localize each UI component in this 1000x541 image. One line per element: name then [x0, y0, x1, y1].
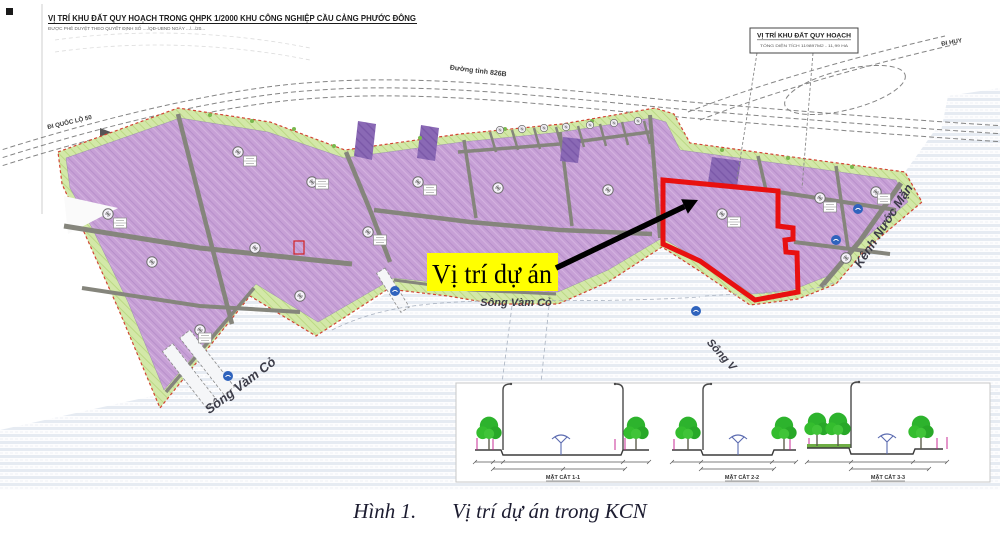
figure-map: Sông Vàm Cỏ Sông Vàm Cỏ Sông V Kênh Nước… — [0, 0, 1000, 490]
hydro-icon — [853, 204, 863, 214]
planning-map-canvas: Sông Vàm Cỏ Sông Vàm Cỏ Sông V Kênh Nước… — [0, 0, 1000, 490]
hydro-icon — [691, 306, 701, 316]
hydro-icon — [831, 235, 841, 245]
figure-caption-label: Hình 1. — [353, 499, 416, 524]
map-subtitle: ĐƯỢC PHÊ DUYỆT THEO QUYẾT ĐỊNH SỐ ..../Q… — [48, 24, 205, 31]
section-caption: MẶT CẮT 3-3 — [871, 473, 905, 481]
exit-west-label: ĐI QUỐC LỘ 50 — [47, 113, 94, 131]
callout-label: Vị trí dự án — [432, 259, 552, 289]
hydro-icon — [223, 371, 233, 381]
figure-caption: Hình 1. Vị trí dự án trong KCN — [0, 499, 1000, 524]
road-label-826b: Đường tỉnh 826B — [449, 65, 507, 79]
exit-east-label: ĐI HUY — [941, 37, 964, 48]
document-page: Sông Vàm Cỏ Sông Vàm Cỏ Sông V Kênh Nước… — [0, 0, 1000, 541]
page-corner-mark — [6, 8, 13, 15]
legend-box: VỊ TRÍ KHU ĐẤT QUY HOẠCH TỔNG DIỆN TÍCH … — [750, 28, 858, 53]
section-caption: MẶT CẮT 2-2 — [725, 473, 759, 481]
figure-caption-title: Vị trí dự án trong KCN — [452, 499, 646, 524]
field-contour-lines — [55, 33, 310, 60]
hydro-icon — [390, 286, 400, 296]
river-label-center: Sông Vàm Cỏ — [480, 297, 552, 309]
section-caption: MẶT CẮT 1-1 — [546, 473, 580, 481]
legend-subtitle: TỔNG DIỆN TÍCH 119897M2 - 11,99 HA — [760, 43, 848, 48]
map-title: VỊ TRÍ KHU ĐẤT QUY HOẠCH TRONG QHPK 1/20… — [48, 12, 416, 23]
map-title-block: VỊ TRÍ KHU ĐẤT QUY HOẠCH TRONG QHPK 1/20… — [48, 12, 417, 31]
